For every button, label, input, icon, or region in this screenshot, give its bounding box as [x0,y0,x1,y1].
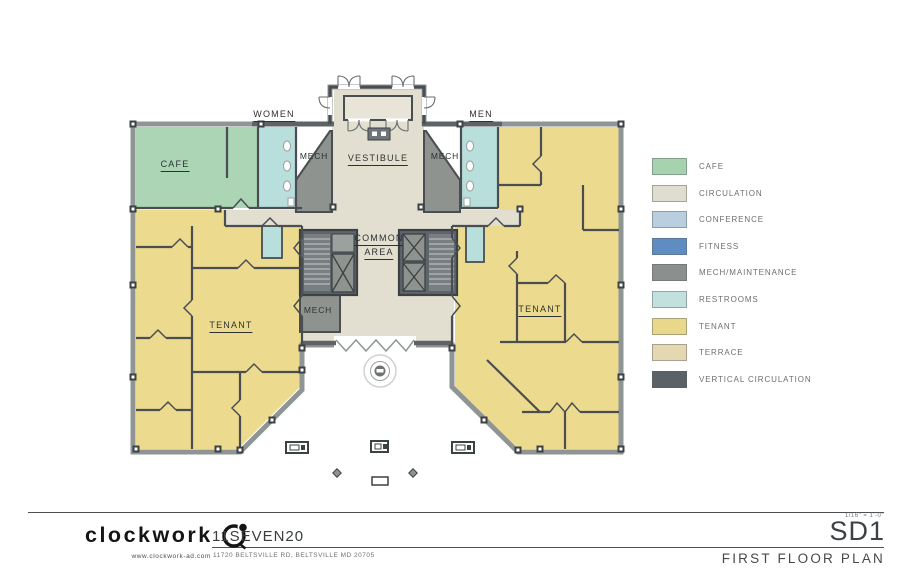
project-name: 11SEVEN20 [212,528,304,545]
legend-item: RESTROOMS [652,291,812,308]
legend-item: CIRCULATION [652,185,812,202]
legend-swatch [652,238,687,255]
legend-item-label: CONFERENCE [699,215,764,224]
mech-right-area [424,131,460,212]
entry-mat [368,128,390,140]
label-women: WOMEN [253,110,295,119]
bench [452,442,474,453]
legend-item-label: RESTROOMS [699,295,759,304]
stair-core-right [399,230,457,295]
legend-swatch [652,318,687,335]
legend-item: CONFERENCE [652,211,812,228]
site-benches [286,441,474,485]
legend-item-label: VERTICAL CIRCULATION [699,375,812,384]
label-mech-right: MECH [431,152,459,161]
stair-core-left [300,230,357,295]
drawing-sheet: WOMEN MEN CAFE MECH VESTIBULE MECH COMMO… [0,0,909,588]
mech-left-area [296,131,332,212]
planter [409,469,417,477]
label-vestibule: VESTIBULE [348,154,408,163]
label-mech-left: MECH [300,152,328,161]
legend-swatch [652,264,687,281]
titleblock-divider-mid [212,547,884,548]
legend-swatch [652,344,687,361]
legend-swatch [652,371,687,388]
legend-swatch [652,185,687,202]
firm-name: clockwork [85,523,213,548]
sheet-title: FIRST FLOOR PLAN [722,551,885,566]
label-cafe: CAFE [161,160,190,169]
titleblock-divider-top [28,512,884,513]
legend-item-label: FITNESS [699,242,739,251]
bench [371,441,388,452]
project-address: 11720 BELTSVILLE RD, BELTSVILLE MD 20705 [213,552,375,559]
legend: CAFECIRCULATIONCONFERENCEFITNESSMECH/MAI… [652,158,812,397]
legend-swatch [652,211,687,228]
sheet-number: SD1 [829,516,885,547]
label-common-area: COMMON [354,234,403,243]
legend-item: VERTICAL CIRCULATION [652,371,812,388]
legend-item: TERRACE [652,344,812,361]
bench [286,442,308,453]
firm-website: www.clockwork-ad.com [85,553,211,560]
label-men: MEN [469,110,493,119]
label-common-area-2: AREA [364,248,393,257]
legend-item: FITNESS [652,238,812,255]
legend-item: MECH/MAINTENANCE [652,264,812,281]
label-tenant-right: TENANT [518,305,561,314]
legend-swatch [652,158,687,175]
legend-item-label: TENANT [699,322,736,331]
legend-item-label: CAFE [699,162,724,171]
legend-item: CAFE [652,158,812,175]
fountain [364,355,396,387]
label-mech-lower: MECH [304,306,332,315]
legend-item-label: TERRACE [699,348,744,357]
label-tenant-left: TENANT [209,321,252,330]
legend-item: TENANT [652,318,812,335]
planter [372,477,388,485]
legend-item-label: CIRCULATION [699,189,763,198]
legend-item-label: MECH/MAINTENANCE [699,268,797,277]
legend-swatch [652,291,687,308]
cafe-area [136,127,258,208]
planter [333,469,341,477]
